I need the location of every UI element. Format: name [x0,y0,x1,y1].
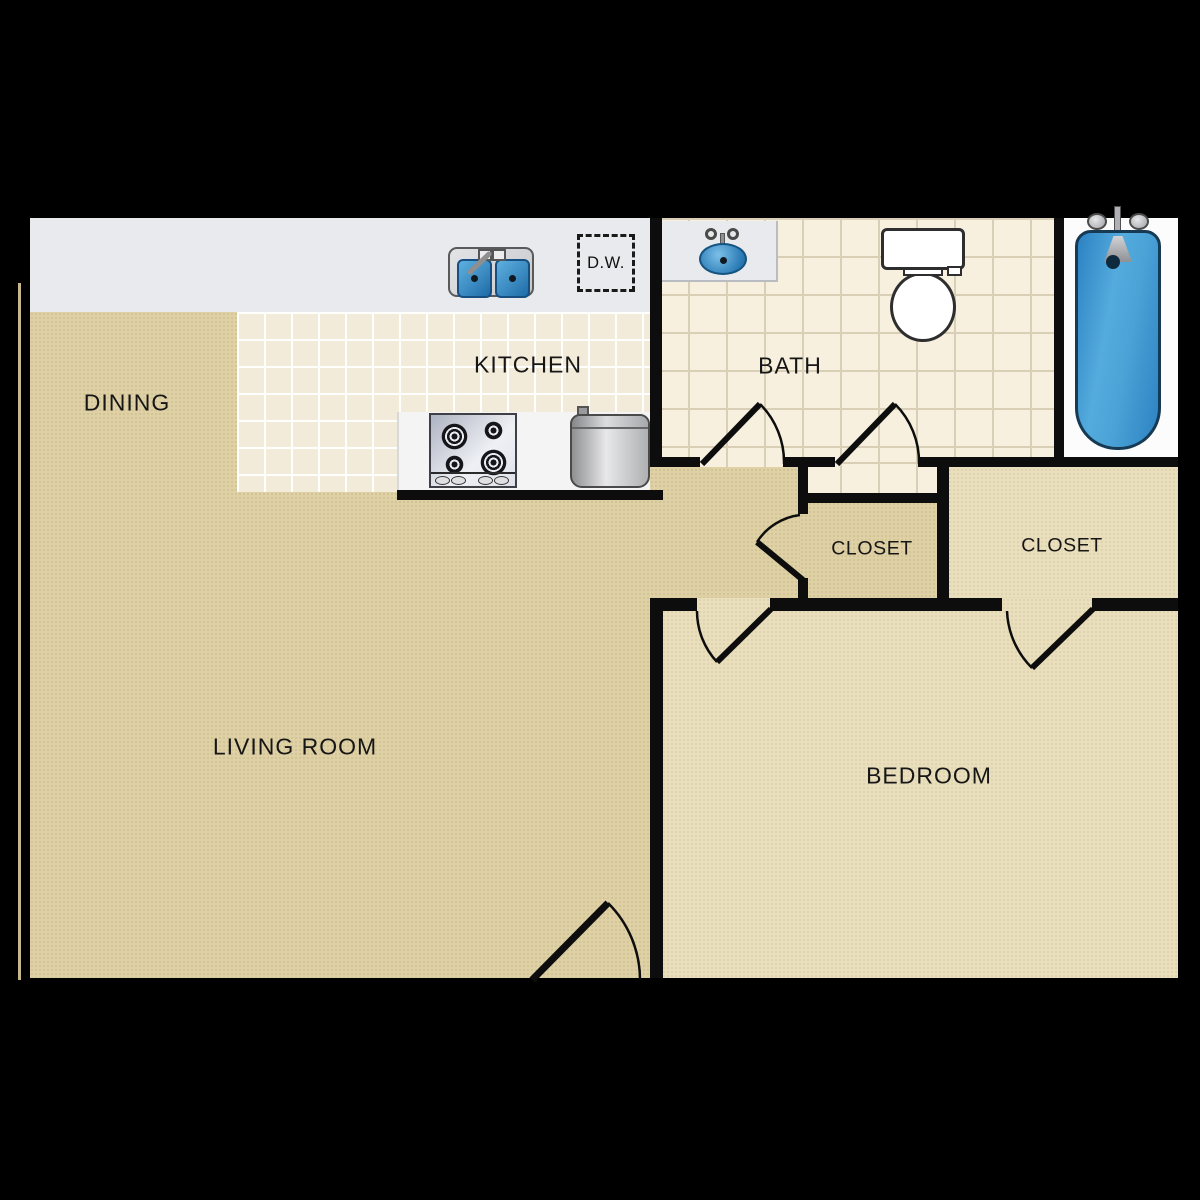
wall-bedroom-west [650,598,663,978]
kitchen-sink [448,247,534,297]
dishwasher-label: D.W. [587,254,625,273]
stove-knob-strip [431,472,515,486]
wall-bath-south-1 [650,457,700,467]
kitchen-sink-basin-left [457,259,492,298]
floor-plan: D.W. [0,0,1200,1200]
wall-bedroom-north-2 [770,598,1002,611]
wall-bath-south-3 [918,457,1178,467]
tub-handle-right [1129,213,1149,230]
kitchen-sink-basin-right [495,259,530,298]
room-label-living-room: LIVING ROOM [213,734,377,761]
floorplan-canvas: { "title": "One-bedroom apartment floor … [0,0,1200,1200]
kitchen-counter-top [30,218,650,312]
wall-kitchen-bath-divider [650,218,662,467]
wall-bedroom-north-3 [1092,598,1178,611]
water-heater-band [572,416,648,429]
stove-cooktop [429,413,517,488]
dishwasher: D.W. [577,234,635,292]
bath-sink-handle-left [705,228,717,240]
burner-icon [441,423,468,450]
toilet-bowl [890,272,956,342]
room-label-kitchen: KITCHEN [474,352,582,379]
wall-kitchen-south [397,490,663,500]
water-heater [570,414,650,488]
room-label-bedroom: BEDROOM [866,763,992,790]
room-label-dining: DINING [84,390,171,417]
tub-handle-left [1087,213,1107,230]
wall-hall-closet-north [798,493,943,503]
kitchen-faucet [478,249,492,261]
room-label-closet-bedroom: CLOSET [1021,535,1103,558]
bath-sink [699,243,747,275]
wall-hall-closet-west-upper [798,462,808,514]
kitchen-faucet-2 [492,249,506,261]
bath-sink-handle-right [727,228,739,240]
wall-closet-divider [937,457,949,611]
wall-tub-alcove-west [1054,218,1064,467]
hallway-floor [650,460,800,603]
toilet-tank [881,228,965,270]
tub-drain [1106,255,1120,269]
room-label-closet-hall: CLOSET [831,538,913,561]
room-label-bath: BATH [758,353,822,380]
left-wall-accent-line [18,283,21,980]
burner-icon [484,421,503,440]
wall-bath-south-2 [783,457,835,467]
toilet-flush-handle [947,266,962,276]
